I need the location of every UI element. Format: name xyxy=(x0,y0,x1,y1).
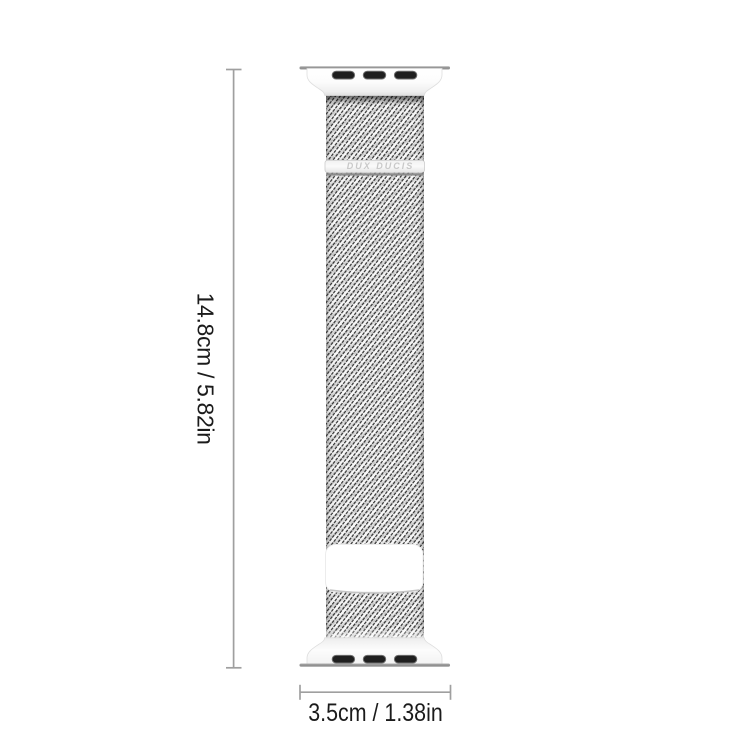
svg-text:3.5cm / 1.38in: 3.5cm / 1.38in xyxy=(308,698,442,726)
svg-text:14.8cm / 5.82in: 14.8cm / 5.82in xyxy=(192,293,218,445)
svg-text:DUX DUCIS: DUX DUCIS xyxy=(347,161,415,171)
